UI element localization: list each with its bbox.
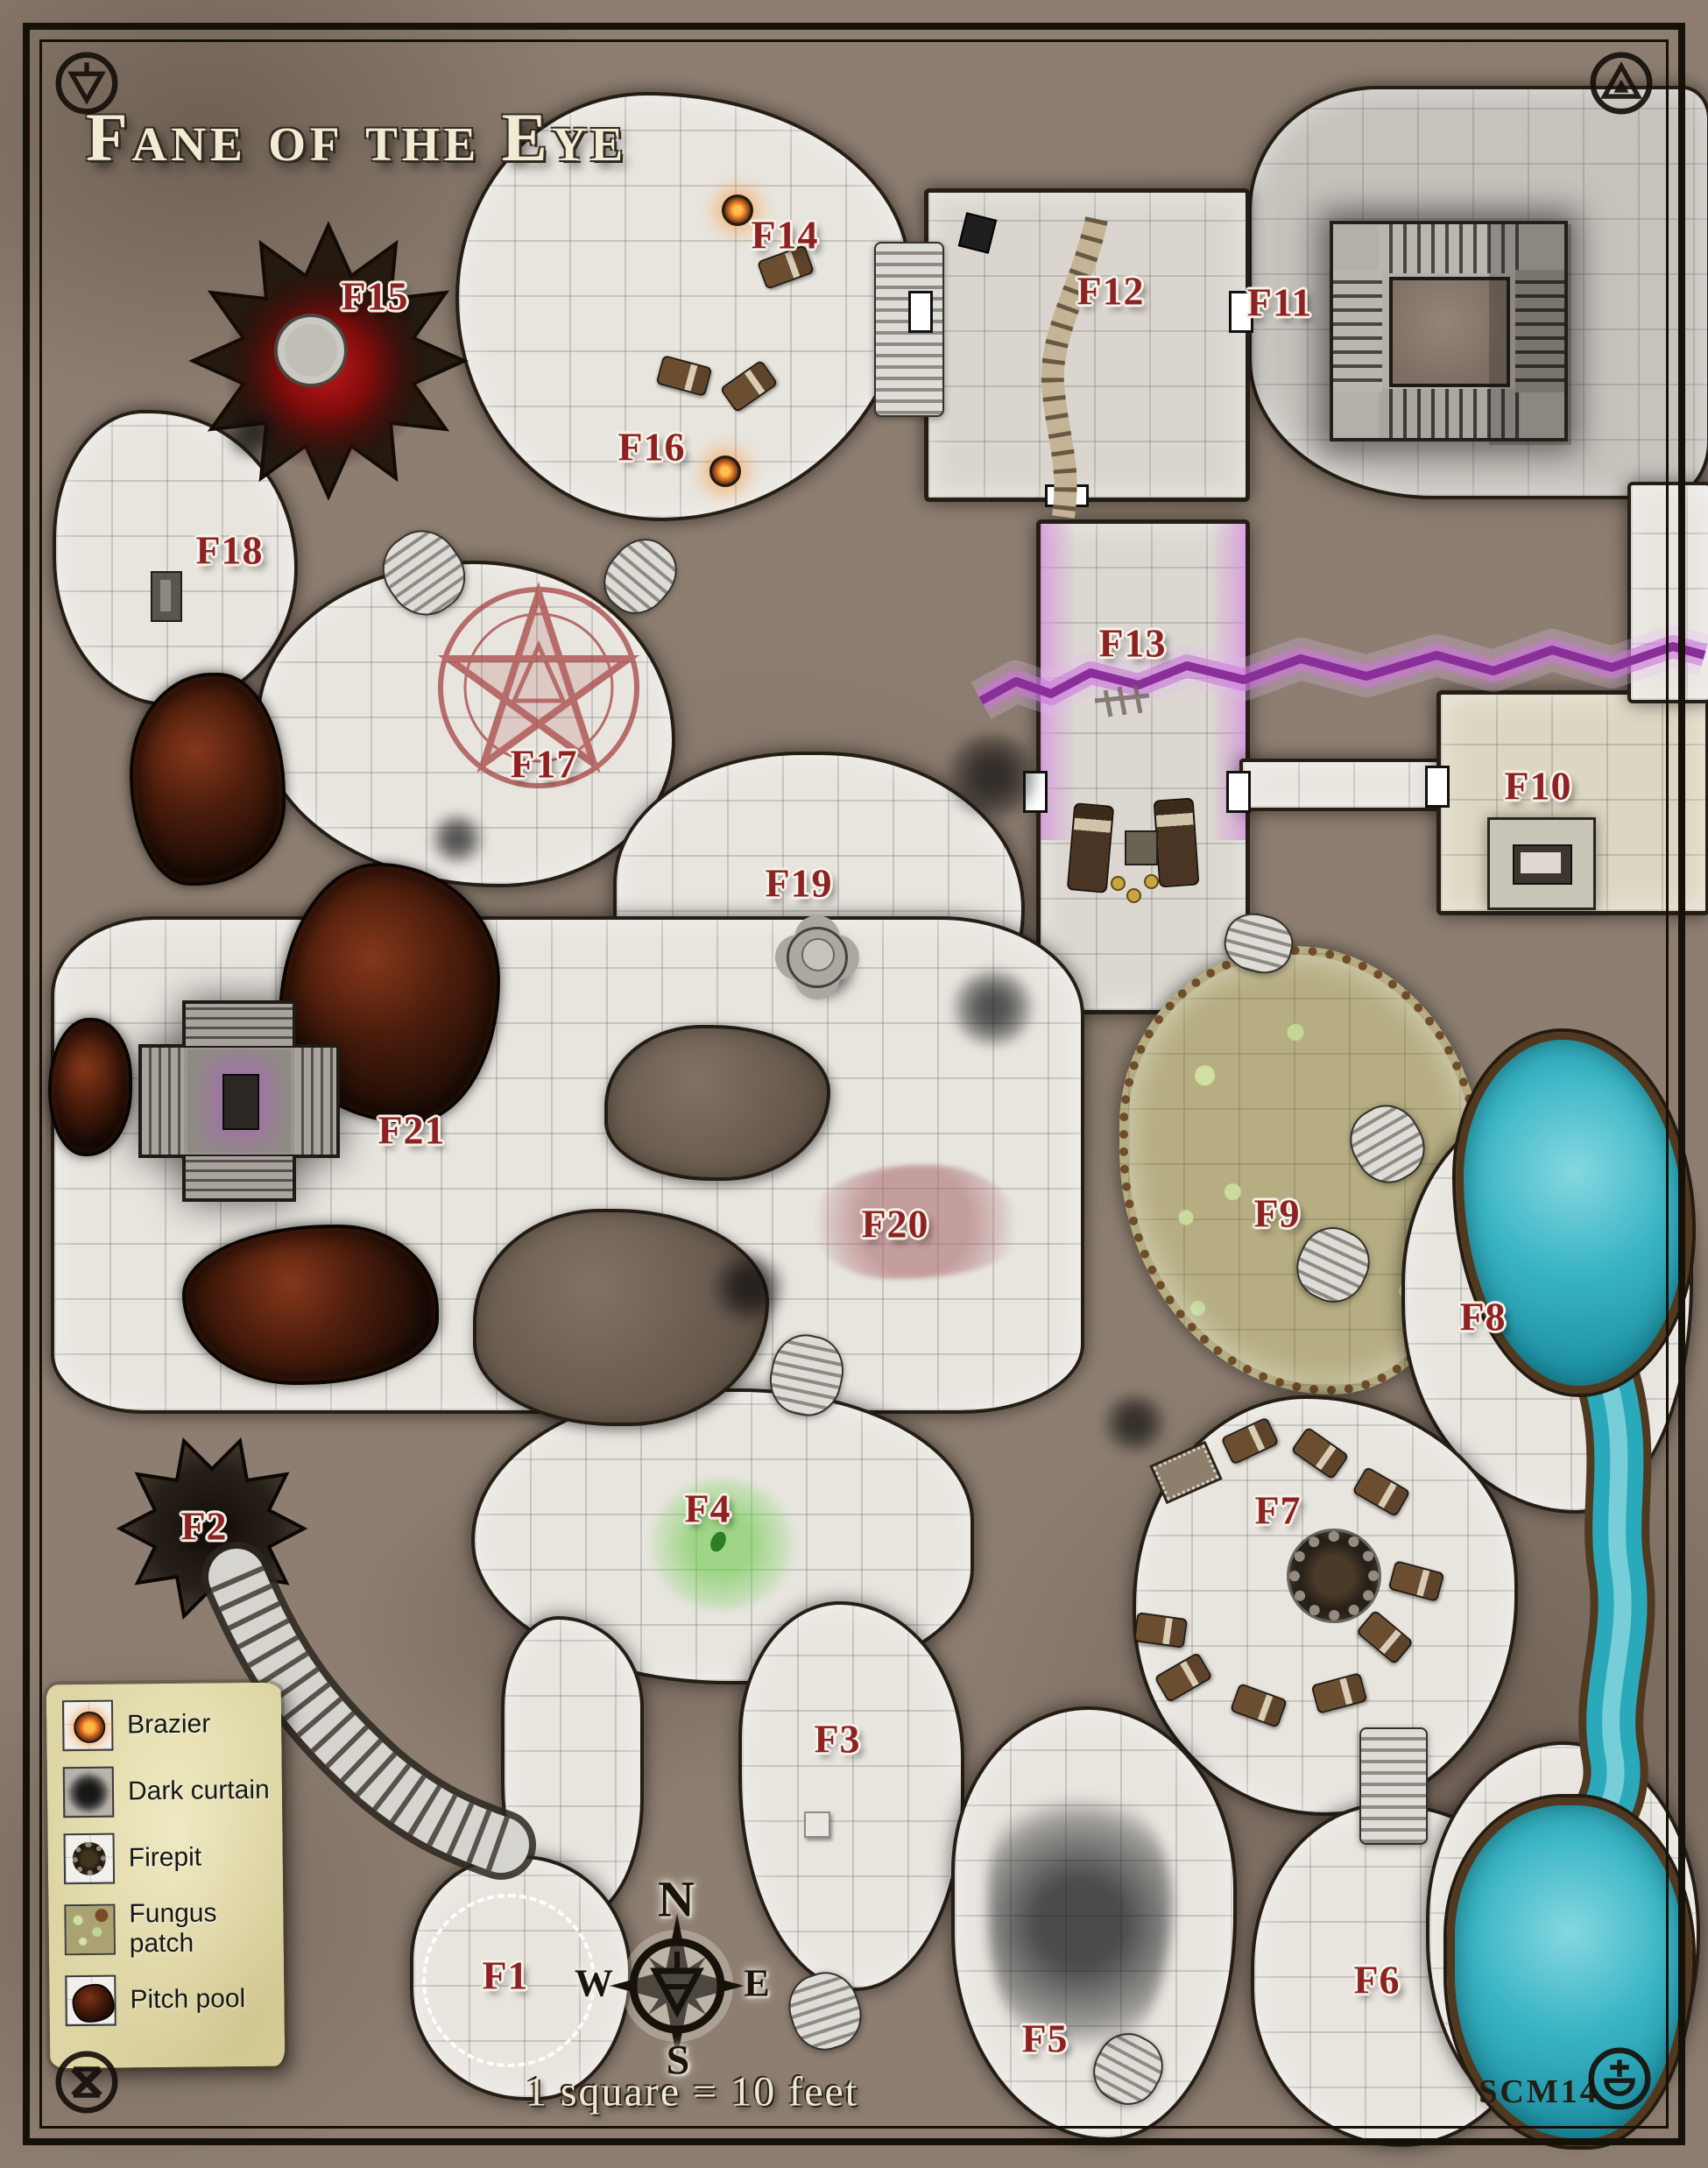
room-label-f8: F8 [1459, 1294, 1506, 1340]
dark-curtain [711, 1254, 786, 1320]
door-f12-west [908, 291, 933, 333]
firepit-f7 [1289, 1531, 1379, 1621]
cross-stairs-north [186, 1004, 293, 1046]
map-title: Fane of the Eye [86, 98, 627, 177]
f15-stone-pillar [276, 315, 346, 385]
cross-stairs-south [186, 1156, 293, 1198]
coin [1126, 888, 1141, 903]
room-label-f20: F20 [861, 1201, 928, 1247]
dungeon-map: F1 F2 F3 F4 F5 F6 F7 F8 F9 F10 F11 F12 F… [0, 0, 1708, 2168]
cross-stairs-west [142, 1048, 184, 1155]
standing-stone-f18 [151, 571, 182, 622]
coin [1111, 876, 1126, 891]
room-label-f21: F21 [378, 1107, 445, 1154]
statue-cap [801, 938, 835, 971]
pitch-pool-lower [182, 1225, 439, 1385]
brazier-icon [62, 1700, 114, 1752]
crate-f13 [1125, 830, 1158, 865]
brazier-f16 [709, 455, 741, 487]
room-label-f15: F15 [341, 273, 408, 320]
sarcophagus-figure [1521, 852, 1561, 873]
corner-glyph-water-icon [49, 2044, 124, 2120]
room-label-f17: F17 [510, 741, 577, 787]
door-f10-west [1425, 766, 1450, 808]
legend-label: Pitch pool [130, 1984, 245, 2015]
door-f12-south [1045, 484, 1089, 507]
dark-curtain [944, 734, 1041, 817]
legend-label: Brazier [127, 1709, 210, 1740]
room-label-f6: F6 [1353, 1957, 1400, 2003]
dark-altar [222, 1074, 259, 1130]
room-f13 [1036, 519, 1250, 1014]
cave-floor-f3 [738, 1601, 964, 1991]
bed-f13-east [1154, 798, 1200, 888]
corridor-f13-f10 [1239, 759, 1450, 811]
dark-curtain [951, 971, 1034, 1045]
stairs-f7-f6 [1359, 1727, 1428, 1845]
room-label-f3: F3 [814, 1716, 860, 1762]
stone-block-f3 [804, 1811, 830, 1838]
legend-row-fungus-patch: Fungus patch [64, 1898, 284, 1960]
room-label-f16: F16 [618, 424, 685, 470]
dark-curtain [431, 815, 483, 863]
room-label-f1: F1 [482, 1953, 528, 1999]
ziggurat-stairs-west [1333, 270, 1382, 392]
dais-f10 [1487, 817, 1596, 910]
legend-row-brazier: Brazier [62, 1698, 282, 1752]
room-label-f14: F14 [751, 212, 818, 258]
legend-row-dark-curtain: Dark curtain [63, 1765, 283, 1818]
room-label-f19: F19 [765, 860, 832, 907]
corner-glyph-earth-icon [1582, 2041, 1657, 2116]
map-scale-text: 1 square = 10 feet [526, 2068, 858, 2116]
door-f13-southeast [1226, 771, 1251, 813]
legend-row-firepit: Firepit [63, 1832, 283, 1885]
coin [1144, 874, 1159, 889]
room-label-f18: F18 [195, 527, 263, 574]
room-label-f4: F4 [684, 1486, 730, 1532]
dark-curtain [226, 410, 279, 458]
corridor-northeast [1627, 482, 1708, 703]
legend-row-pitch-pool: Pitch pool [65, 1974, 285, 2027]
dark-curtain [1102, 1395, 1168, 1451]
dark-curtain-icon [63, 1767, 115, 1818]
room-label-f9: F9 [1253, 1190, 1300, 1237]
map-legend: Brazier Dark curtain Firepit Fungus patc… [46, 1683, 286, 2069]
compass-west-label: W [575, 1961, 613, 2006]
corner-glyph-air-icon [49, 46, 124, 121]
compass-east-label: E [744, 1961, 769, 2006]
ziggurat-shade [1489, 224, 1571, 445]
room-label-f7: F7 [1254, 1487, 1301, 1534]
cross-platform-f21 [138, 1000, 340, 1202]
corner-glyph-fire-icon [1584, 46, 1659, 121]
ziggurat-platform-f11 [1330, 221, 1568, 441]
pitch-pool-upper [130, 673, 286, 886]
room-label-f12: F12 [1076, 268, 1144, 314]
sarcophagus [1513, 844, 1572, 885]
compass-north-label: N [658, 1870, 695, 1929]
legend-label: Firepit [129, 1843, 202, 1874]
room-label-f10: F10 [1504, 763, 1571, 809]
room-label-f13: F13 [1098, 620, 1166, 667]
legend-label: Dark curtain [128, 1776, 270, 1807]
fungus-patch-icon [64, 1904, 116, 1956]
cross-stairs-east [294, 1048, 336, 1155]
room-label-f11: F11 [1247, 279, 1313, 326]
room-label-f2: F2 [180, 1503, 227, 1550]
legend-label: Fungus patch [129, 1898, 284, 1960]
bed-f13-west [1067, 802, 1115, 893]
brazier-f14 [722, 194, 753, 226]
pitch-pool-icon [65, 1975, 116, 2027]
pitch-pool-west-edge [48, 1018, 132, 1156]
statue-f19 [787, 927, 848, 988]
room-label-f5: F5 [1021, 2016, 1068, 2062]
firepit-icon [63, 1833, 115, 1885]
